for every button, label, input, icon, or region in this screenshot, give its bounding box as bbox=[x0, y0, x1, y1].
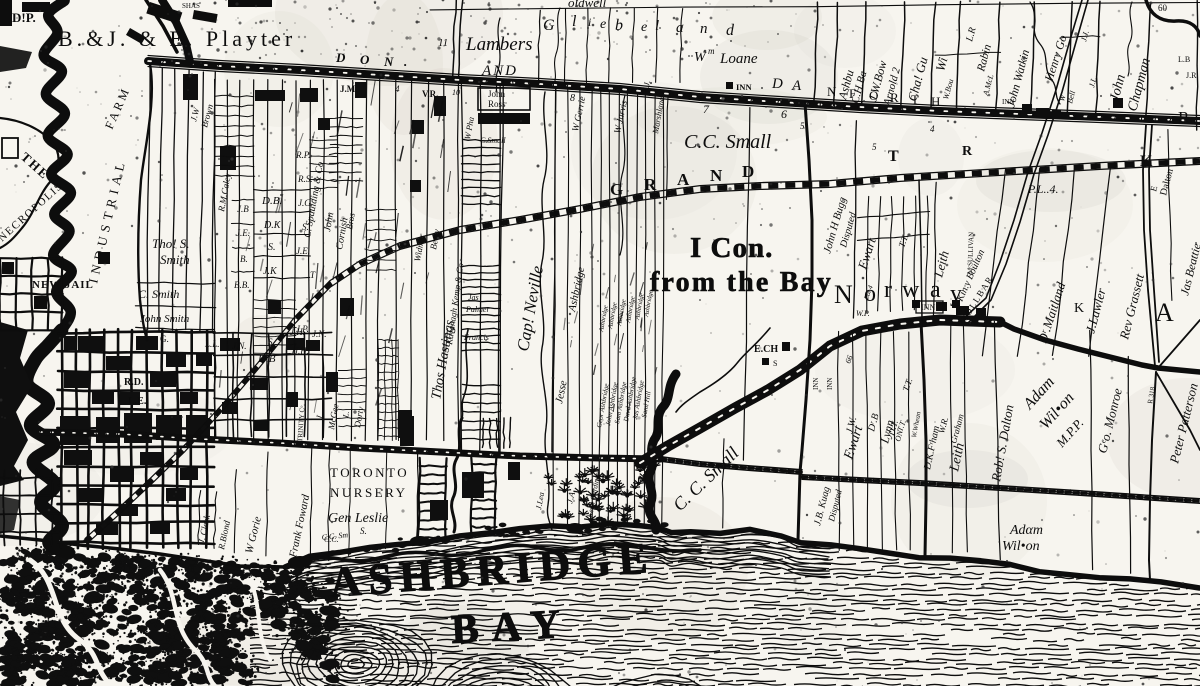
svg-text:m: m bbox=[708, 46, 715, 56]
svg-text:Adαm: Adαm bbox=[1009, 523, 1043, 538]
svg-text:S.: S. bbox=[360, 526, 367, 536]
svg-text:Francis: Francis bbox=[463, 333, 489, 342]
svg-text:J.M.: J.M. bbox=[340, 84, 358, 94]
svg-text:N: N bbox=[834, 280, 853, 309]
svg-text:C.C.: C.C. bbox=[324, 535, 339, 544]
svg-text:D: D bbox=[335, 50, 346, 65]
svg-text:K: K bbox=[1074, 301, 1084, 316]
svg-text:D: D bbox=[742, 162, 754, 181]
svg-text:AND: AND bbox=[481, 63, 518, 79]
svg-text:4: 4 bbox=[395, 84, 400, 94]
svg-text:C. Smith: C. Smith bbox=[138, 287, 179, 301]
svg-text:J.B: J.B bbox=[237, 204, 249, 214]
svg-text:J.P.: J.P. bbox=[296, 324, 309, 334]
svg-text:oldwell: oldwell bbox=[568, 0, 607, 10]
svg-text:R: R bbox=[890, 90, 899, 105]
svg-text:L.E.: L.E. bbox=[128, 396, 147, 407]
svg-text:A: A bbox=[677, 170, 690, 189]
svg-text:6: 6 bbox=[781, 107, 787, 121]
svg-text:n: n bbox=[700, 21, 708, 37]
svg-text:J.K: J.K bbox=[263, 266, 278, 277]
svg-text:a: a bbox=[930, 277, 941, 303]
svg-text:e: e bbox=[641, 20, 647, 35]
svg-text:7: 7 bbox=[703, 102, 710, 116]
svg-text:J.E.: J.E. bbox=[296, 246, 310, 256]
svg-text:A: A bbox=[1155, 298, 1174, 327]
svg-text:Ross: Ross bbox=[488, 99, 506, 109]
svg-text:E.CH: E.CH bbox=[754, 344, 778, 355]
svg-text:F: F bbox=[849, 86, 856, 101]
svg-text:w: w bbox=[902, 277, 920, 303]
svg-text:A: A bbox=[791, 78, 802, 94]
svg-text:Tho! S.: Tho! S. bbox=[152, 236, 190, 251]
svg-text:NEW JAIL: NEW JAIL bbox=[32, 279, 94, 291]
svg-text:from the Bay: from the Bay bbox=[650, 267, 833, 298]
svg-text:G.: G. bbox=[160, 334, 169, 344]
svg-text:Smith: Smith bbox=[160, 252, 190, 267]
svg-text:60: 60 bbox=[1158, 3, 1168, 13]
svg-text:Loane: Loane bbox=[719, 51, 758, 67]
svg-text:l: l bbox=[655, 18, 659, 34]
svg-text:C.C. Small: C.C. Small bbox=[684, 131, 772, 153]
svg-text:G: G bbox=[543, 17, 555, 34]
svg-text:C.Small: C.Small bbox=[480, 136, 506, 145]
svg-text:J.N.: J.N. bbox=[312, 329, 327, 339]
svg-text:d: d bbox=[726, 22, 735, 39]
svg-text:B.&J. & E. Playter: B.&J. & E. Playter bbox=[58, 26, 296, 51]
svg-text:R: R bbox=[962, 144, 973, 159]
svg-text:J.N.: J.N. bbox=[232, 341, 247, 351]
svg-text:5: 5 bbox=[872, 142, 877, 152]
svg-text:John: John bbox=[488, 89, 506, 99]
svg-text:SHAS: SHAS bbox=[182, 2, 200, 10]
svg-text:T: T bbox=[911, 92, 919, 107]
svg-text:P.L..4.: P.L..4. bbox=[1027, 182, 1058, 196]
svg-text:J.J.: J.J. bbox=[641, 80, 652, 93]
svg-text:R.D.: R.D. bbox=[124, 377, 144, 388]
svg-text:Lambers: Lambers bbox=[465, 34, 533, 55]
svg-text:O: O bbox=[869, 88, 878, 103]
svg-text:5: 5 bbox=[800, 121, 805, 131]
svg-text:I Con.: I Con. bbox=[690, 232, 773, 264]
svg-text:D: D bbox=[771, 76, 783, 92]
svg-text:N: N bbox=[710, 166, 723, 185]
svg-text:J.E.: J.E. bbox=[236, 228, 250, 238]
svg-text:.: . bbox=[404, 54, 407, 69]
svg-text:T: T bbox=[888, 148, 899, 165]
svg-text:N: N bbox=[383, 54, 394, 69]
svg-text:r: r bbox=[884, 277, 892, 303]
svg-text:B.B.: B.B. bbox=[234, 280, 250, 290]
svg-text:L.B: L.B bbox=[1178, 55, 1190, 64]
svg-text:N: N bbox=[827, 84, 837, 99]
svg-text:b: b bbox=[615, 17, 623, 34]
svg-text:INN: INN bbox=[1002, 98, 1014, 106]
svg-text:INN: INN bbox=[736, 82, 752, 92]
svg-text:e: e bbox=[600, 17, 606, 32]
svg-text:4: 4 bbox=[930, 124, 935, 134]
svg-text:L.: L. bbox=[341, 410, 351, 419]
svg-text:Gen Leslie: Gen Leslie bbox=[328, 511, 388, 526]
svg-text:10: 10 bbox=[452, 88, 460, 97]
svg-text:R: R bbox=[1178, 108, 1190, 127]
svg-text:H: H bbox=[931, 94, 940, 109]
svg-text:NURSERY: NURSERY bbox=[330, 485, 407, 500]
svg-text:J.R: J.R bbox=[1186, 71, 1197, 80]
svg-text:Wil•on: Wil•on bbox=[1002, 539, 1040, 554]
svg-text:Palmer: Palmer bbox=[465, 305, 490, 314]
svg-text:W.P.: W.P. bbox=[856, 309, 870, 318]
svg-text:R.P.: R.P. bbox=[295, 150, 310, 160]
svg-text:BAY: BAY bbox=[450, 600, 574, 652]
svg-text:D!P.: D!P. bbox=[12, 10, 36, 25]
svg-text:B.: B. bbox=[240, 254, 248, 264]
svg-text:R.S.: R.S. bbox=[297, 174, 313, 184]
svg-text:INN: INN bbox=[826, 378, 834, 390]
svg-text:G: G bbox=[610, 180, 623, 199]
svg-text:Jas: Jas bbox=[468, 293, 479, 302]
svg-text:John Smith: John Smith bbox=[140, 313, 190, 325]
svg-text:D.K: D.K bbox=[263, 220, 282, 231]
svg-text:INN: INN bbox=[812, 378, 820, 390]
svg-text:INN: INN bbox=[921, 303, 935, 312]
svg-text:8: 8 bbox=[570, 93, 575, 104]
svg-text:i: i bbox=[588, 15, 591, 29]
svg-text:TORONTO: TORONTO bbox=[330, 465, 409, 480]
svg-text:L.L.: L.L. bbox=[204, 339, 220, 349]
svg-text:S: S bbox=[773, 359, 777, 368]
svg-text:S.: S. bbox=[268, 242, 276, 253]
